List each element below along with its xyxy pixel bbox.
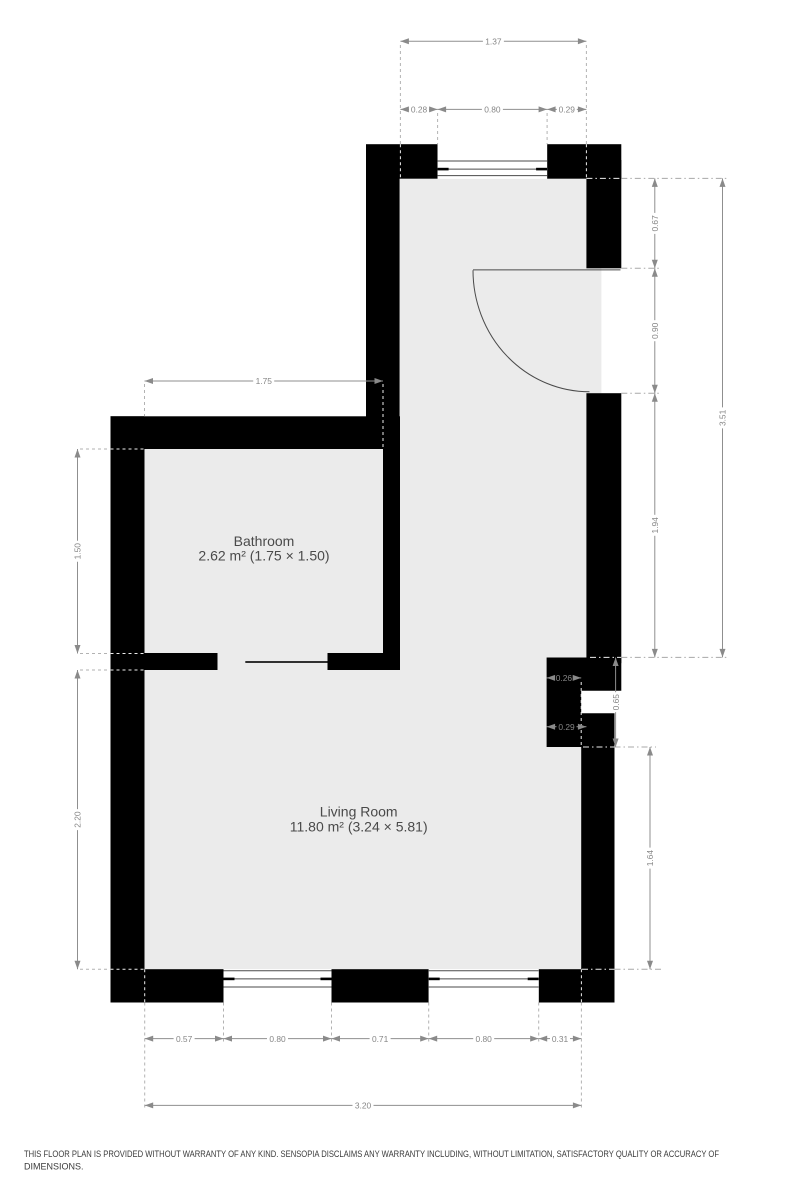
svg-text:0.80: 0.80 xyxy=(484,105,501,115)
svg-text:0.65: 0.65 xyxy=(611,694,621,711)
svg-text:2.62 m² (1.75 × 1.50): 2.62 m² (1.75 × 1.50) xyxy=(198,547,329,563)
svg-text:DIMENSIONS.: DIMENSIONS. xyxy=(24,1162,84,1172)
svg-text:0.90: 0.90 xyxy=(650,322,660,339)
svg-text:0.31: 0.31 xyxy=(552,1034,569,1044)
svg-text:0.80: 0.80 xyxy=(476,1034,493,1044)
svg-text:11.80 m² (3.24 × 5.81): 11.80 m² (3.24 × 5.81) xyxy=(290,819,428,835)
svg-text:THIS FLOOR PLAN IS PROVIDED WI: THIS FLOOR PLAN IS PROVIDED WITHOUT WARR… xyxy=(24,1149,719,1159)
svg-text:0.67: 0.67 xyxy=(650,215,660,232)
svg-text:3.20: 3.20 xyxy=(355,1101,372,1111)
svg-text:1.75: 1.75 xyxy=(256,376,273,386)
svg-text:1.64: 1.64 xyxy=(645,850,655,867)
svg-text:0.29: 0.29 xyxy=(558,722,575,732)
svg-text:1.94: 1.94 xyxy=(650,517,660,534)
svg-text:0.57: 0.57 xyxy=(176,1034,193,1044)
svg-text:0.26: 0.26 xyxy=(556,673,573,683)
svg-text:Living Room: Living Room xyxy=(320,804,398,820)
svg-text:1.50: 1.50 xyxy=(73,543,83,560)
svg-text:0.29: 0.29 xyxy=(559,105,576,115)
svg-text:0.80: 0.80 xyxy=(269,1034,286,1044)
svg-text:2.20: 2.20 xyxy=(73,811,83,828)
svg-text:1.37: 1.37 xyxy=(485,37,502,47)
svg-text:3.51: 3.51 xyxy=(718,409,728,426)
svg-text:0.71: 0.71 xyxy=(372,1034,389,1044)
svg-text:0.28: 0.28 xyxy=(411,105,428,115)
